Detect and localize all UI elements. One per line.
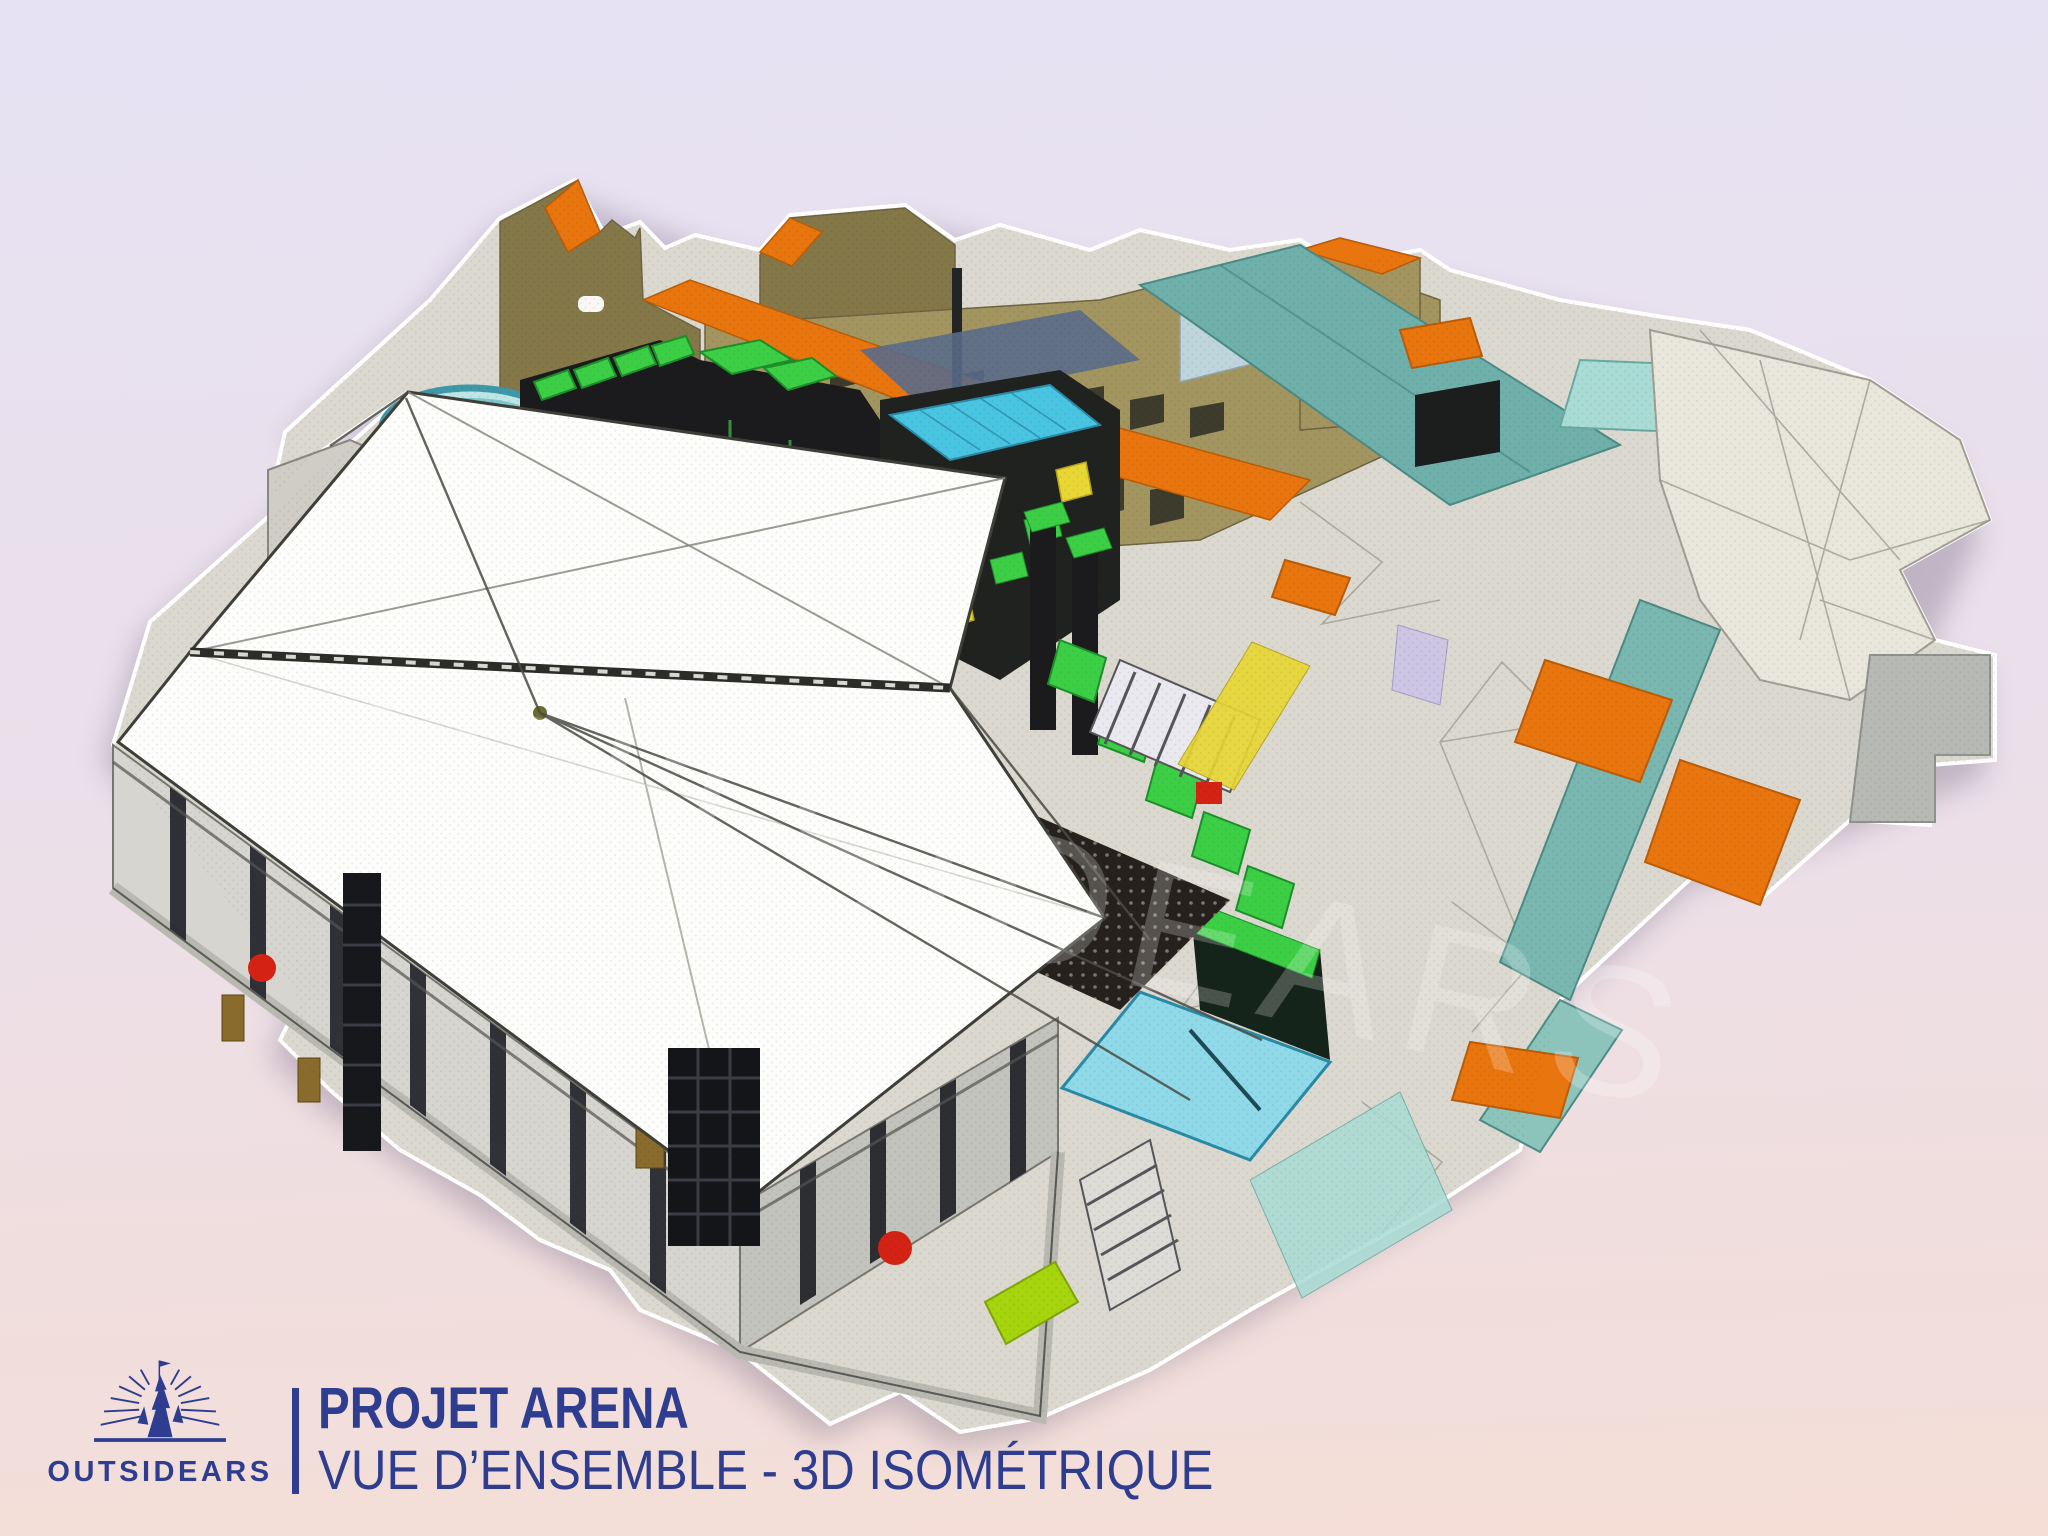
arena-3d-model: OUTSIDEARS — [0, 0, 2048, 1536]
page-title: PROJET ARENA — [318, 1380, 1152, 1438]
footer-divider — [292, 1388, 299, 1494]
logo-brand-text: OUTSIDEARS — [40, 1456, 280, 1489]
door — [222, 995, 244, 1041]
outsidears-logo: OUTSIDEARS — [40, 1358, 280, 1489]
halftone-texture — [100, 140, 2010, 1450]
castle-spire-with-rays-icon — [75, 1358, 245, 1454]
slide-background: OUTSIDEARS — [0, 0, 2048, 1536]
footer: OUTSIDEARS PROJET ARENA VUE D’ENSEMBLE -… — [0, 1350, 2048, 1536]
titles-block: PROJET ARENA VUE D’ENSEMBLE - 3D ISOMÉTR… — [318, 1380, 1336, 1498]
page-subtitle: VUE D’ENSEMBLE - 3D ISOMÉTRIQUE — [318, 1442, 1213, 1498]
